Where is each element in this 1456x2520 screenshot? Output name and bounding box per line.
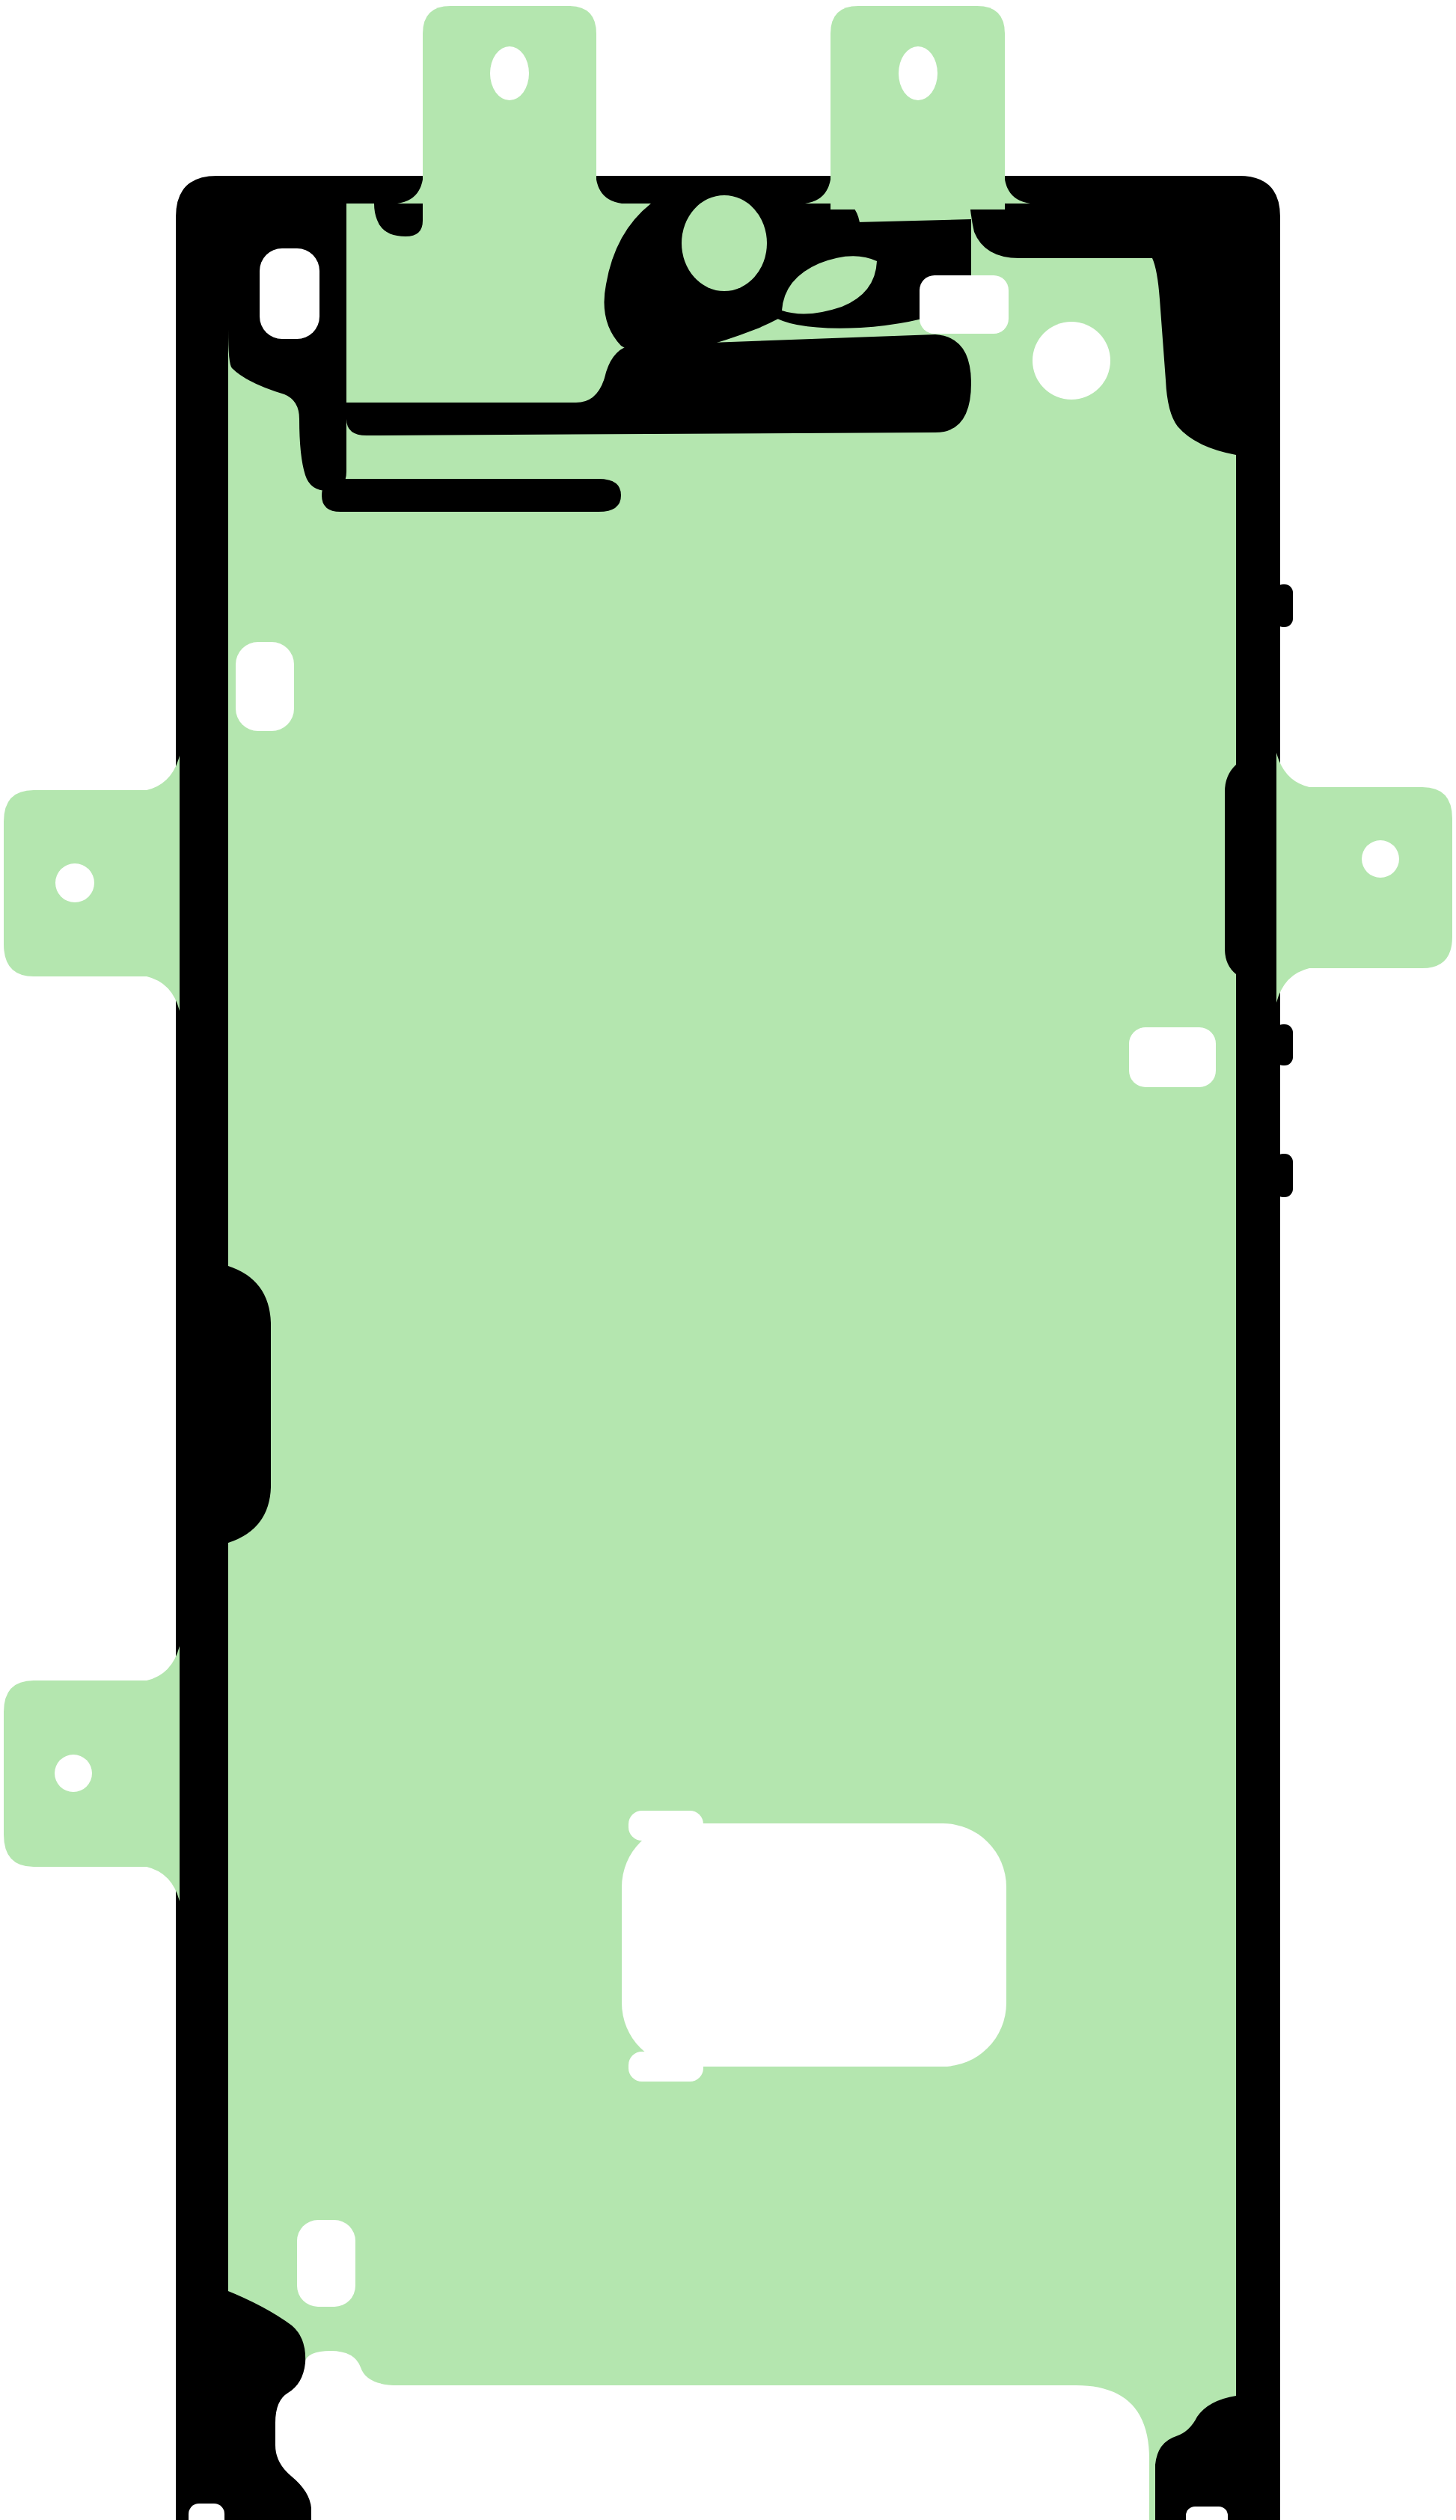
right-border-inner-jog xyxy=(1225,765,1236,974)
cutout-bottom-right-notch xyxy=(1186,2507,1228,2520)
cutout-top-right-circle xyxy=(1033,322,1110,400)
top-tab-right xyxy=(831,6,1005,210)
adhesive-main-body xyxy=(228,204,1236,2520)
left-border-inner-bump xyxy=(228,1266,271,1543)
right-edge-notch-bump-1 xyxy=(1275,584,1293,627)
cutout-right-slot xyxy=(1129,1027,1216,1087)
adhesive-sticker-illustration xyxy=(0,0,1456,2520)
tab-hole-right xyxy=(1362,840,1399,878)
camera-hole-green-island xyxy=(682,195,767,291)
adhesive-interior-layer xyxy=(228,204,1236,2520)
side-tab-right xyxy=(1276,753,1452,1003)
tab-hole-left-upper xyxy=(55,863,94,902)
cutout-center-window xyxy=(622,1823,1006,2067)
product-photo-canvas xyxy=(0,0,1456,2520)
cutout-bottom-left-notch xyxy=(189,2504,224,2520)
cutout-top-right-square xyxy=(920,275,1009,334)
right-edge-notch-bump-3 xyxy=(1275,1154,1293,1197)
top-tab-left xyxy=(423,6,596,210)
tab-hole-left-lower xyxy=(55,1755,92,1792)
cutout-bottom-left-slot xyxy=(297,2220,355,2307)
tab-hole-top-left xyxy=(490,46,529,100)
tab-hole-top-right xyxy=(899,46,937,100)
top-right-block-strip xyxy=(968,176,1236,258)
cutout-top-left-slot xyxy=(260,248,319,339)
lower-channel-band xyxy=(322,479,621,512)
right-edge-notch-bump-2 xyxy=(1275,1024,1293,1065)
cutout-left-slot xyxy=(236,642,294,731)
